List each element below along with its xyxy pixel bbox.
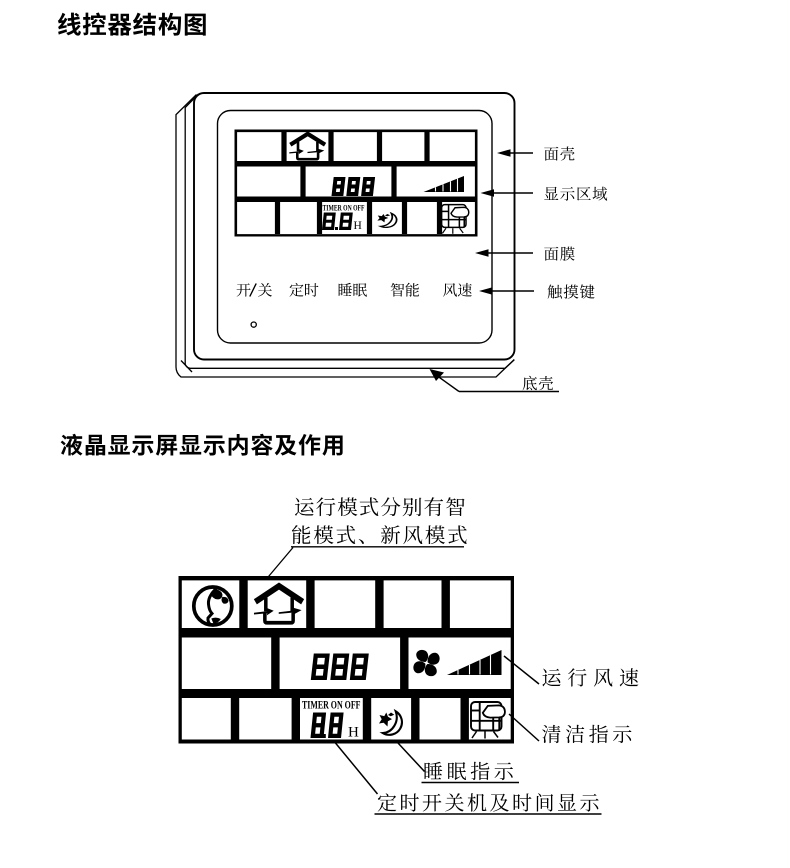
svg-text:TIMER ON OFF: TIMER ON OFF — [323, 203, 365, 213]
svg-text:H: H — [354, 220, 362, 232]
svg-text:H: H — [348, 725, 359, 741]
svg-text:TIMER ON OFF: TIMER ON OFF — [302, 700, 361, 712]
